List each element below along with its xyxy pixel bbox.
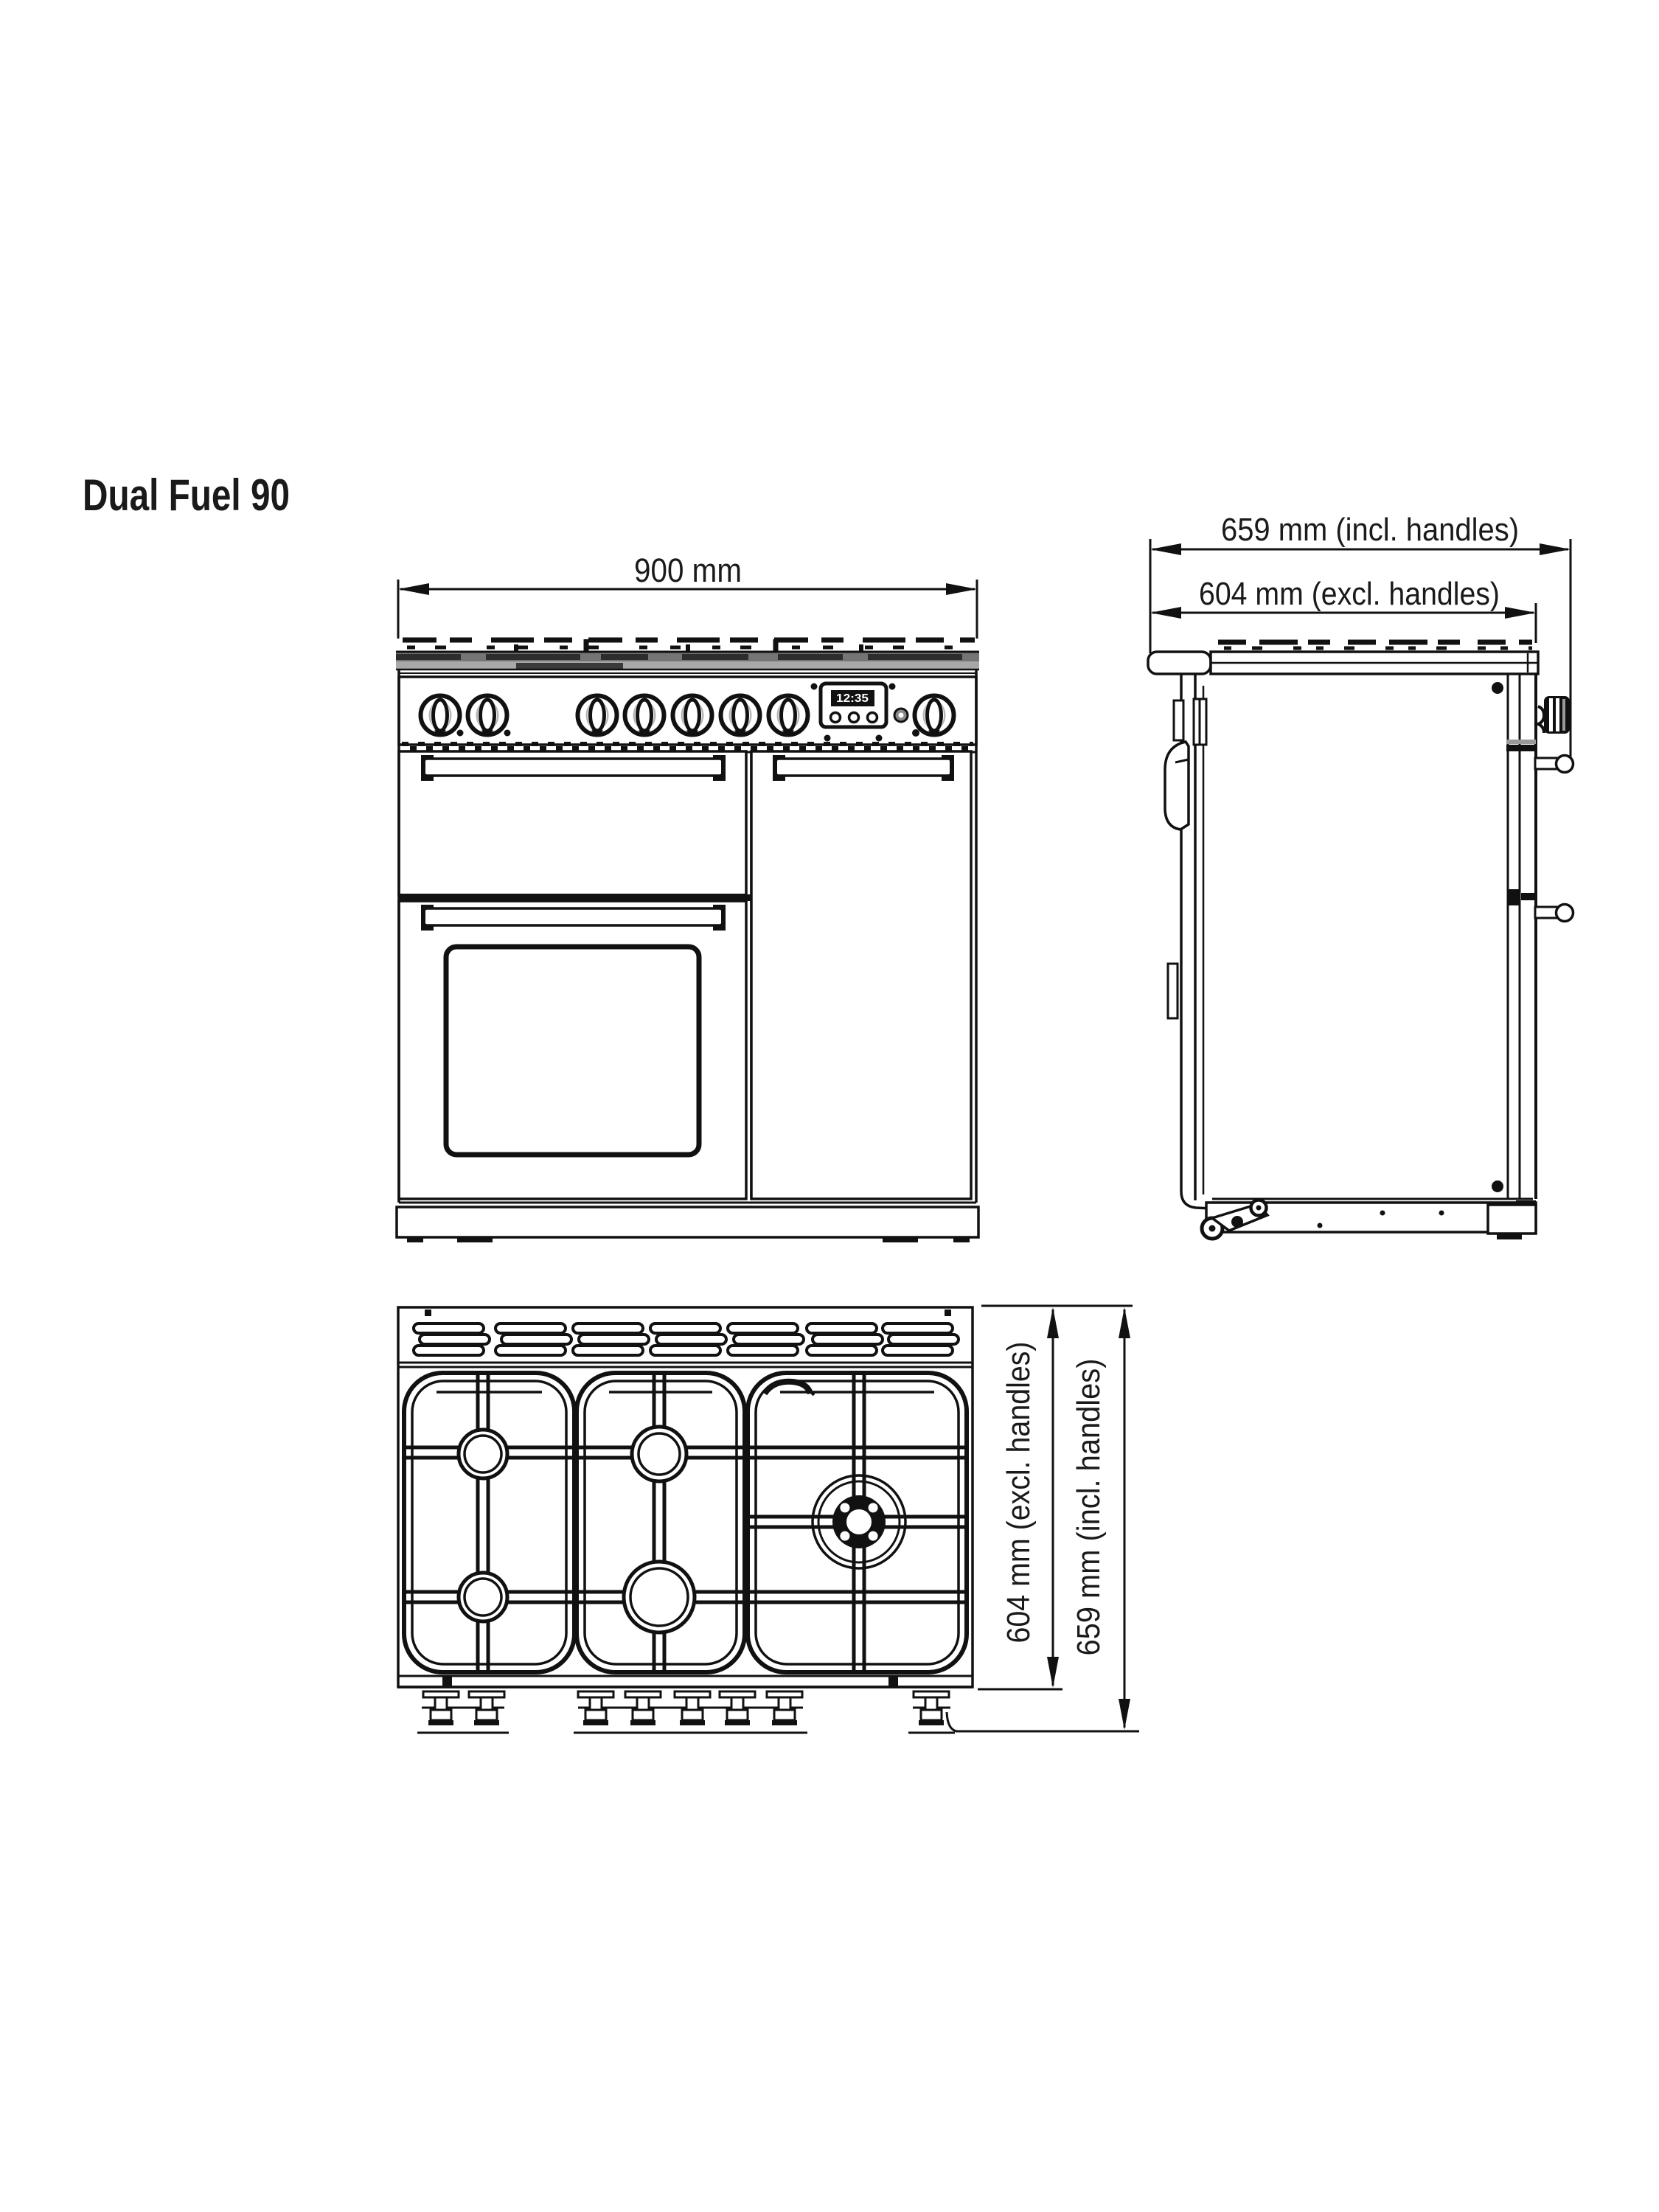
svg-text:900 mm: 900 mm [634, 552, 742, 589]
svg-text:12:35: 12:35 [836, 692, 869, 705]
svg-text:659 mm (incl. handles): 659 mm (incl. handles) [1071, 1359, 1107, 1656]
svg-text:Dual Fuel 90: Dual Fuel 90 [83, 470, 290, 520]
svg-text:659 mm (incl. handles): 659 mm (incl. handles) [1221, 512, 1519, 548]
svg-text:604 mm (excl. handles): 604 mm (excl. handles) [1001, 1342, 1037, 1644]
svg-text:604 mm (excl. handles): 604 mm (excl. handles) [1199, 576, 1500, 612]
